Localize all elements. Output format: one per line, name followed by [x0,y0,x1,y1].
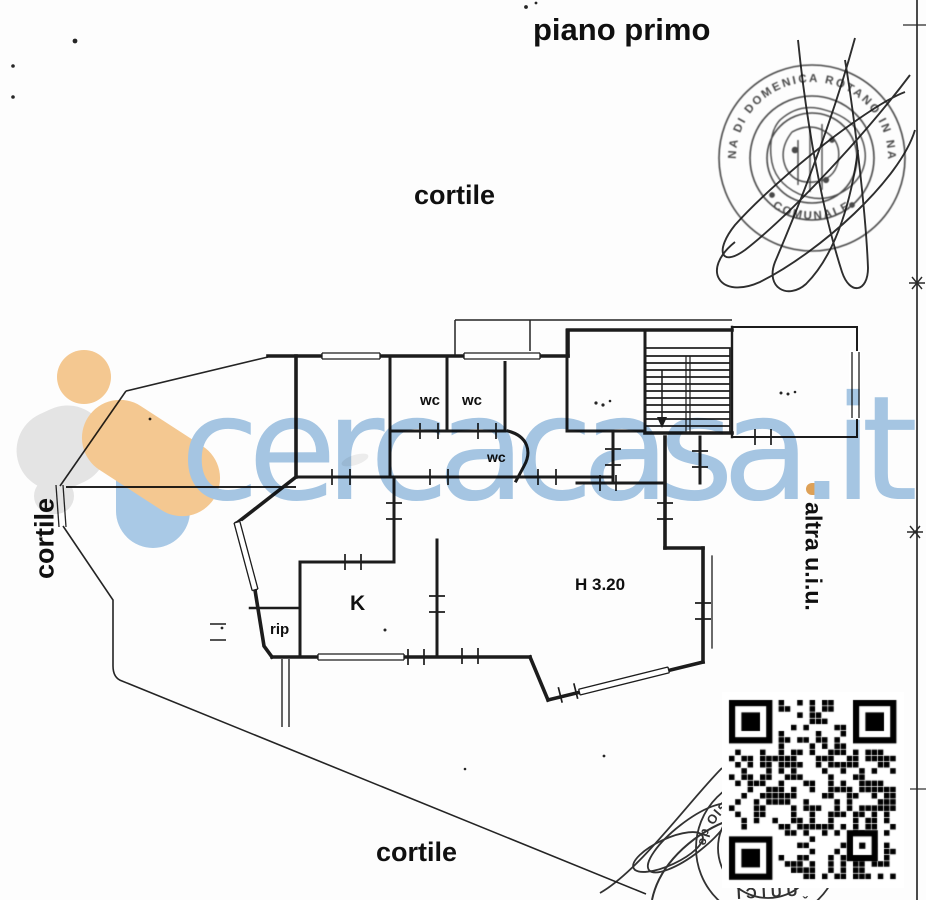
terrace-outline [455,320,732,356]
page-border-line [903,0,926,900]
notary-stamp: MARINA DI DOMENICA ROTANO IN NAPOLI COMU… [0,0,905,251]
apartment-exterior-walls [237,327,732,700]
qr-code [722,692,904,888]
svg-text:MARINA DI DOMENICA ROTANO IN N: MARINA DI DOMENICA ROTANO IN NAPOLI [0,0,897,162]
stamp-ring-text-top: MARINA DI DOMENICA ROTANO IN NAPOLI [0,0,897,162]
adjacent-unit-outline [732,327,861,437]
survey-star-mark [907,526,923,538]
apartment-interior-walls [250,330,712,657]
staircase [645,348,730,433]
door-ticks [210,423,771,703]
lot-boundary [56,357,646,894]
